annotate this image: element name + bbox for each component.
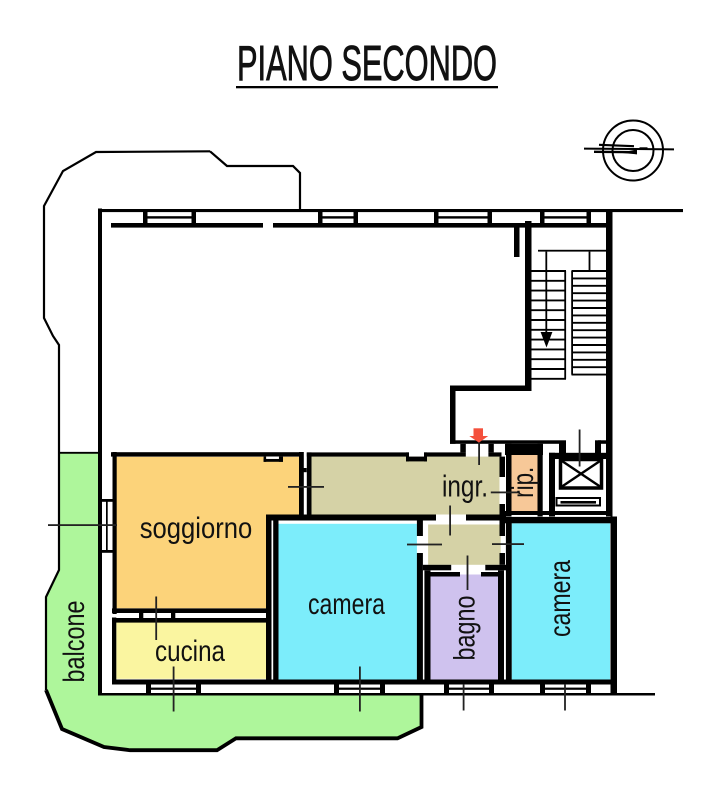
svg-text:bagno: bagno <box>449 596 482 661</box>
svg-text:rip.: rip. <box>507 467 540 498</box>
svg-text:ingr.: ingr. <box>442 469 488 504</box>
svg-text:soggiorno: soggiorno <box>140 512 253 545</box>
svg-text:balcone: balcone <box>58 601 91 683</box>
svg-text:PIANO SECONDO: PIANO SECONDO <box>237 37 497 91</box>
svg-text:cucina: cucina <box>155 635 225 668</box>
svg-text:camera: camera <box>544 560 577 637</box>
svg-text:camera: camera <box>308 588 385 621</box>
